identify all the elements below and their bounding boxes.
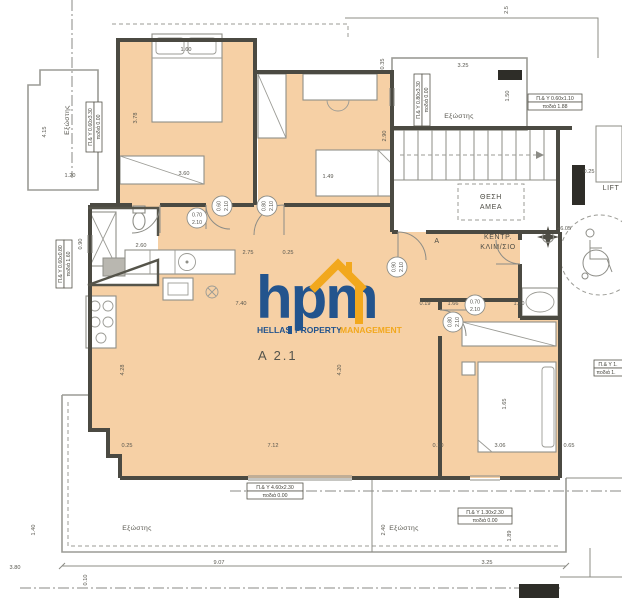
svg-text:0.25: 0.25 [122, 443, 133, 449]
svg-text:3.25: 3.25 [482, 560, 493, 566]
toilet [133, 213, 145, 230]
central-label: ΚΛΙΜ/ΣΙΟ [480, 244, 516, 251]
amea-label: ΘΕΣΗ [480, 194, 502, 201]
svg-text:1.89: 1.89 [507, 531, 513, 542]
door-size-tag: 0.802.10 [257, 196, 277, 216]
svg-text:Π.& Υ 1.30x2.30: Π.& Υ 1.30x2.30 [466, 510, 504, 516]
logo-word-property: PROPERTY [295, 325, 342, 335]
svg-text:2.10: 2.10 [224, 201, 230, 211]
svg-text:0.10: 0.10 [433, 443, 444, 449]
svg-text:2.75: 2.75 [243, 250, 254, 256]
svg-text:Π.& Υ 0.60x3.30: Π.& Υ 0.60x3.30 [88, 108, 94, 146]
svg-text:1.40: 1.40 [31, 525, 37, 536]
level-label: +6.05 [557, 226, 571, 232]
svg-text:2.90: 2.90 [382, 131, 388, 142]
svg-text:0.90: 0.90 [78, 239, 84, 250]
svg-text:2.10: 2.10 [192, 220, 202, 226]
svg-text:0.60: 0.60 [217, 201, 223, 211]
svg-text:7.12: 7.12 [268, 443, 279, 449]
door-size-tag: 0.602.10 [212, 196, 232, 216]
svg-text:ποδιά 1.88: ποδιά 1.88 [543, 103, 568, 110]
door-size-tag: 0.702.10 [465, 295, 485, 315]
svg-text:1.50: 1.50 [505, 91, 511, 102]
window-tag: Π.& Υ 0.80x3.30 ποδιά 0.00 [414, 74, 430, 126]
svg-text:0.19: 0.19 [420, 301, 431, 307]
logo-tagline: HELLAS PROPERTY MANAGEMENT [257, 325, 403, 335]
door-size-tag: 0.902.10 [387, 257, 407, 277]
central-label: ΚΕΝΤΡ. [484, 234, 512, 241]
svg-text:Π.& Υ 0.60x1.10: Π.& Υ 0.60x1.10 [536, 96, 574, 102]
svg-text:ποδιά 0.00: ποδιά 0.00 [423, 87, 430, 112]
desk [303, 74, 377, 100]
window-tag: Π.& Υ 0.60x0.80 ποδιά 1.60 [56, 240, 72, 288]
svg-text:3.25: 3.25 [458, 63, 469, 69]
window-tag: Π.& Υ 4.60x2.30 ποδιά 0.00 [247, 483, 303, 499]
balcony-label: Εξώστης [389, 524, 419, 532]
svg-text:ποδιά 1.60: ποδιά 1.60 [65, 251, 72, 276]
svg-text:0.65: 0.65 [564, 443, 575, 449]
unit-label: A 2.1 [258, 348, 298, 363]
kitchen-counter [125, 250, 235, 274]
window-tag: Π.& Υ 1.30x2.30 ποδιά 0.00 [458, 508, 512, 524]
svg-text:2.10: 2.10 [399, 262, 405, 272]
svg-text:1.90: 1.90 [514, 301, 525, 307]
svg-text:1.20: 1.20 [65, 173, 76, 179]
svg-text:0.70: 0.70 [470, 300, 480, 306]
floor-plan-drawing: hpm HELLAS PROPERTY MANAGEMENT A 2.1 ΘΕΣ… [0, 0, 622, 600]
svg-text:1.66: 1.66 [448, 301, 459, 307]
svg-text:1.65: 1.65 [502, 399, 508, 410]
logo-word-management: MANAGEMENT [340, 325, 403, 335]
svg-text:9.07: 9.07 [214, 560, 225, 566]
nightstand [462, 362, 475, 375]
svg-text:Π.& Υ 0.60x0.80: Π.& Υ 0.60x0.80 [58, 245, 64, 283]
svg-text:0.25: 0.25 [584, 169, 595, 175]
svg-text:2.10: 2.10 [269, 201, 275, 211]
single-bed [316, 150, 392, 196]
svg-text:1.49: 1.49 [323, 174, 334, 180]
svg-text:Π.& Υ 4.60x2.30: Π.& Υ 4.60x2.30 [256, 485, 294, 491]
svg-text:ποδιά 0.00: ποδιά 0.00 [263, 492, 288, 499]
svg-text:4.28: 4.28 [120, 365, 126, 376]
balcony-label: Εξώστης [122, 524, 152, 532]
svg-text:ποδιά 0.00: ποδιά 0.00 [95, 114, 102, 139]
svg-text:4.20: 4.20 [337, 365, 343, 376]
door-size-tag: 0.802.10 [443, 312, 463, 332]
svg-text:0.80: 0.80 [262, 201, 268, 211]
svg-text:2.10: 2.10 [455, 317, 461, 327]
svg-text:0.80: 0.80 [448, 317, 454, 327]
window-tag: Π.& Υ 0.60x3.30 ποδιά 0.00 [86, 102, 102, 152]
window-tag: Π.& Υ 1. ποδιά 1. [594, 360, 622, 376]
svg-text:0.70: 0.70 [192, 213, 202, 219]
balcony-label: Εξώστης [63, 105, 71, 135]
svg-text:2.10: 2.10 [470, 307, 480, 313]
balcony-label: Εξώστης [444, 112, 474, 120]
lift-label: LIFT [603, 185, 620, 192]
floor-plan-canvas: hpm HELLAS PROPERTY MANAGEMENT A 2.1 ΘΕΣ… [0, 0, 622, 600]
svg-text:3.06: 3.06 [495, 443, 506, 449]
svg-text:3.60: 3.60 [179, 171, 190, 177]
svg-text:2.60: 2.60 [136, 243, 147, 249]
window-tag: Π.& Υ 0.60x1.10 ποδιά 1.88 [528, 94, 582, 110]
svg-text:0.25: 0.25 [283, 250, 294, 256]
svg-text:7.40: 7.40 [236, 301, 247, 307]
svg-text:ποδιά 0.00: ποδιά 0.00 [473, 517, 498, 524]
svg-text:2.40: 2.40 [381, 525, 387, 536]
amea-label: ΑΜΕΑ [480, 204, 502, 211]
bed [478, 362, 556, 452]
svg-text:3.78: 3.78 [133, 113, 139, 124]
svg-text:Π.& Υ 0.80x3.30: Π.& Υ 0.80x3.30 [416, 81, 422, 119]
svg-text:0.35: 0.35 [380, 59, 386, 70]
door-size-tag: 0.702.10 [187, 208, 207, 228]
svg-text:0.10: 0.10 [83, 575, 89, 586]
svg-text:Π.& Υ 1.: Π.& Υ 1. [598, 362, 617, 368]
svg-text:ποδιά 1.: ποδιά 1. [596, 369, 615, 376]
logo-word-hellas: HELLAS [257, 325, 291, 335]
svg-text:3.80: 3.80 [10, 565, 21, 571]
svg-text:2.5: 2.5 [504, 6, 510, 14]
svg-text:4.15: 4.15 [42, 127, 48, 138]
zone-label: A [434, 238, 439, 245]
svg-text:1.60: 1.60 [181, 47, 192, 53]
svg-text:0.90: 0.90 [392, 262, 398, 272]
